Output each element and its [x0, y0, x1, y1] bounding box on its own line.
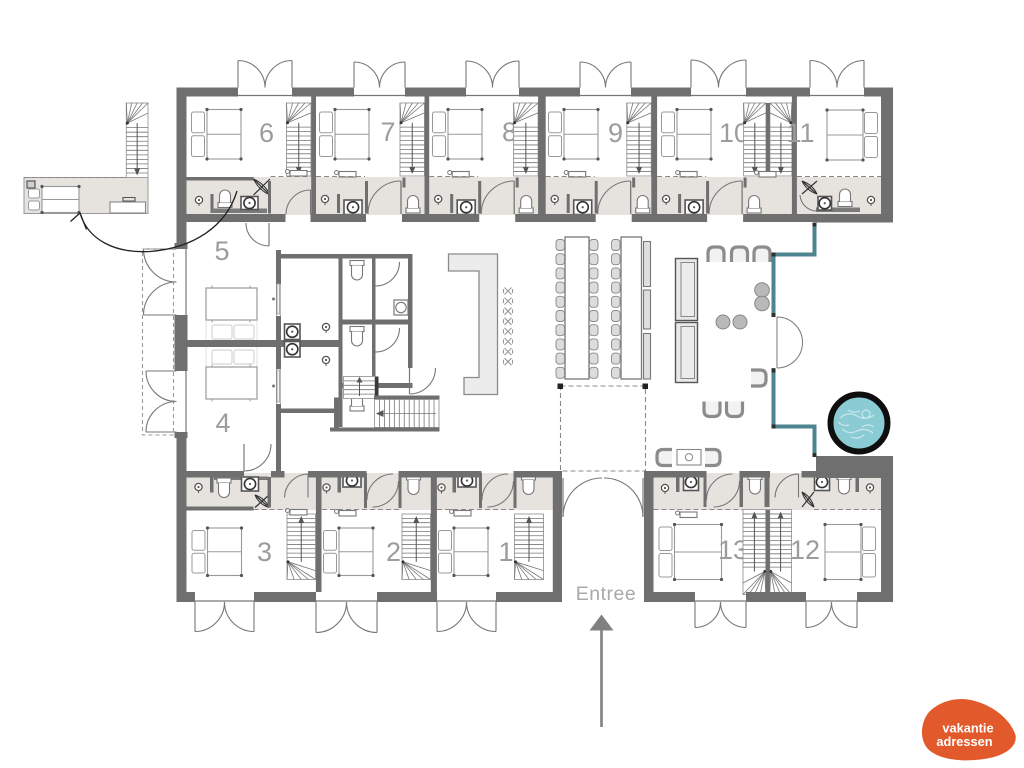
svg-text:6: 6 [259, 118, 274, 148]
svg-text:2: 2 [386, 537, 401, 567]
svg-text:adressen: adressen [936, 734, 992, 749]
svg-text:7: 7 [380, 117, 395, 147]
svg-text:4: 4 [215, 408, 230, 438]
svg-text:12: 12 [790, 535, 820, 565]
svg-text:3: 3 [257, 537, 272, 567]
svg-text:5: 5 [214, 236, 229, 266]
svg-text:Entree: Entree [576, 583, 636, 605]
svg-text:9: 9 [608, 118, 623, 148]
svg-text:1: 1 [498, 537, 513, 567]
svg-text:11: 11 [786, 118, 814, 148]
